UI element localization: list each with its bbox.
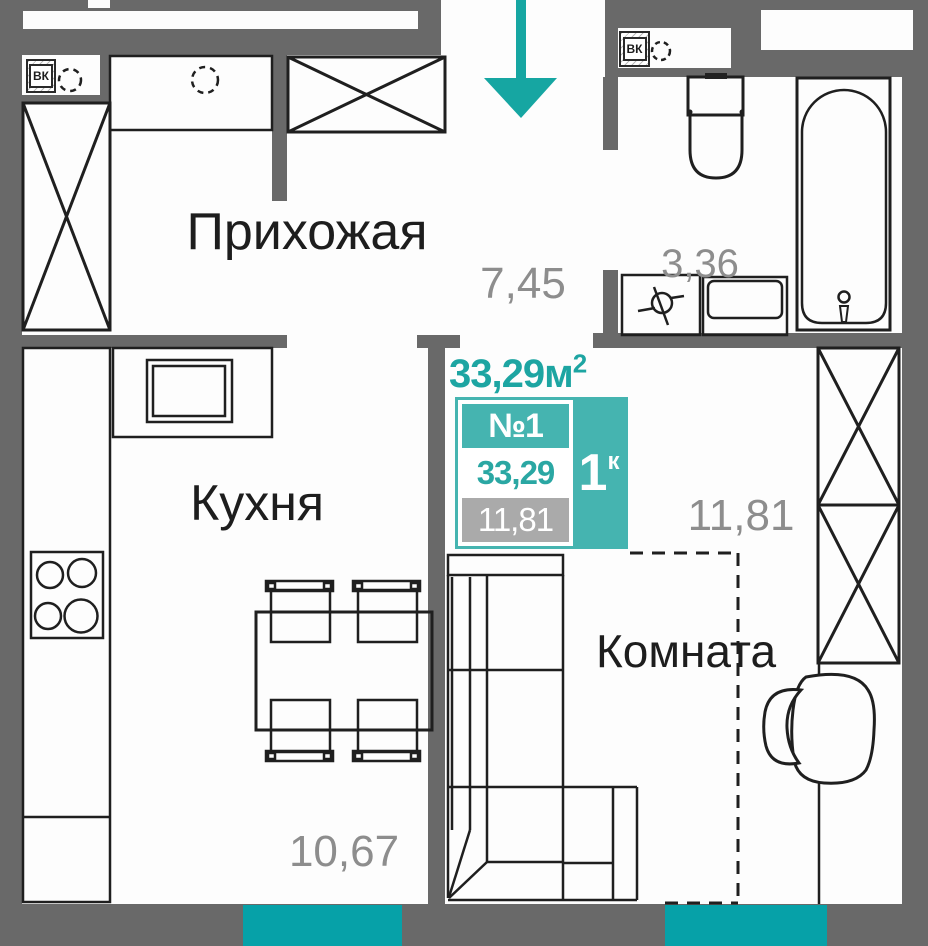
kitchen-label: Кухня [190, 478, 324, 528]
bathroom-area-label: 3,36 [661, 244, 739, 284]
dresser-icon [110, 56, 272, 130]
kitchen-sink-counter-icon [113, 348, 272, 437]
wardrobe-hallway-left-icon [23, 103, 110, 330]
wall-bathroom-left-upper [603, 77, 618, 150]
window-niche-top-left [23, 11, 418, 29]
rooms-count-value: 1 [579, 447, 608, 499]
vent-circle-hallway-icon [59, 69, 81, 91]
badge-total-area-title: 33,29м2 [449, 352, 586, 397]
wall-hallway-partition-stub [272, 55, 287, 201]
entrance-arrow-icon [484, 0, 557, 118]
wall-left [0, 0, 22, 946]
bed-zone-dashed [630, 553, 738, 904]
hallway-area-label: 7,45 [480, 262, 566, 306]
wall-bathroom-left-lower [603, 270, 618, 335]
apartment-badge-left: №1 33,29 11,81 [458, 400, 573, 546]
vent-shaft-hallway: ВК [26, 59, 56, 93]
toilet-icon [688, 73, 745, 178]
bathtub-drain-icon [839, 292, 850, 303]
bathtub-faucet-icon [840, 306, 848, 322]
vent-shaft-bathroom: ВК [619, 31, 650, 67]
badge-total-area-sup: 2 [573, 349, 586, 379]
wall-notch-top [88, 0, 110, 8]
mirror-icon [192, 67, 218, 93]
stove-icon [31, 552, 103, 638]
floor-plan: Прихожая 7,45 3,36 Кухня 10,67 Комната 1… [0, 0, 928, 946]
window-room [665, 905, 827, 946]
kitchen-sink-icon [147, 360, 232, 422]
sofa-icon [448, 555, 637, 900]
wardrobe-hallway-top-icon [288, 57, 445, 132]
apartment-total-area: 33,29 [462, 451, 569, 495]
room-label: Комната [596, 628, 776, 674]
vent-shaft-bathroom-label: ВК [623, 37, 647, 61]
dining-table-icon [256, 612, 432, 730]
window-niche-top-right [761, 10, 913, 50]
wall-vent-niche-stub [100, 55, 110, 97]
vent-shaft-hallway-label: ВК [29, 64, 53, 88]
apartment-rooms-count: 1к [573, 400, 625, 546]
wall-hallway-room-stub [417, 335, 460, 348]
window-kitchen [243, 905, 402, 946]
badge-total-area-value: 33,29 [449, 352, 544, 396]
wardrobe-room-icon [818, 348, 899, 904]
badge-total-area-unit: м [544, 352, 573, 396]
kitchen-area-label: 10,67 [289, 830, 399, 874]
armchair-icon [764, 674, 875, 783]
room-area-label: 11,81 [688, 494, 795, 538]
hallway-label: Прихожая [187, 206, 428, 258]
wall-right [902, 0, 928, 946]
apartment-living-area: 11,81 [462, 498, 569, 542]
bathtub-icon [797, 78, 890, 330]
apartment-badge: №1 33,29 11,81 1к [455, 397, 628, 549]
wall-hallway-kitchen [20, 335, 287, 348]
apartment-number: №1 [462, 404, 569, 448]
